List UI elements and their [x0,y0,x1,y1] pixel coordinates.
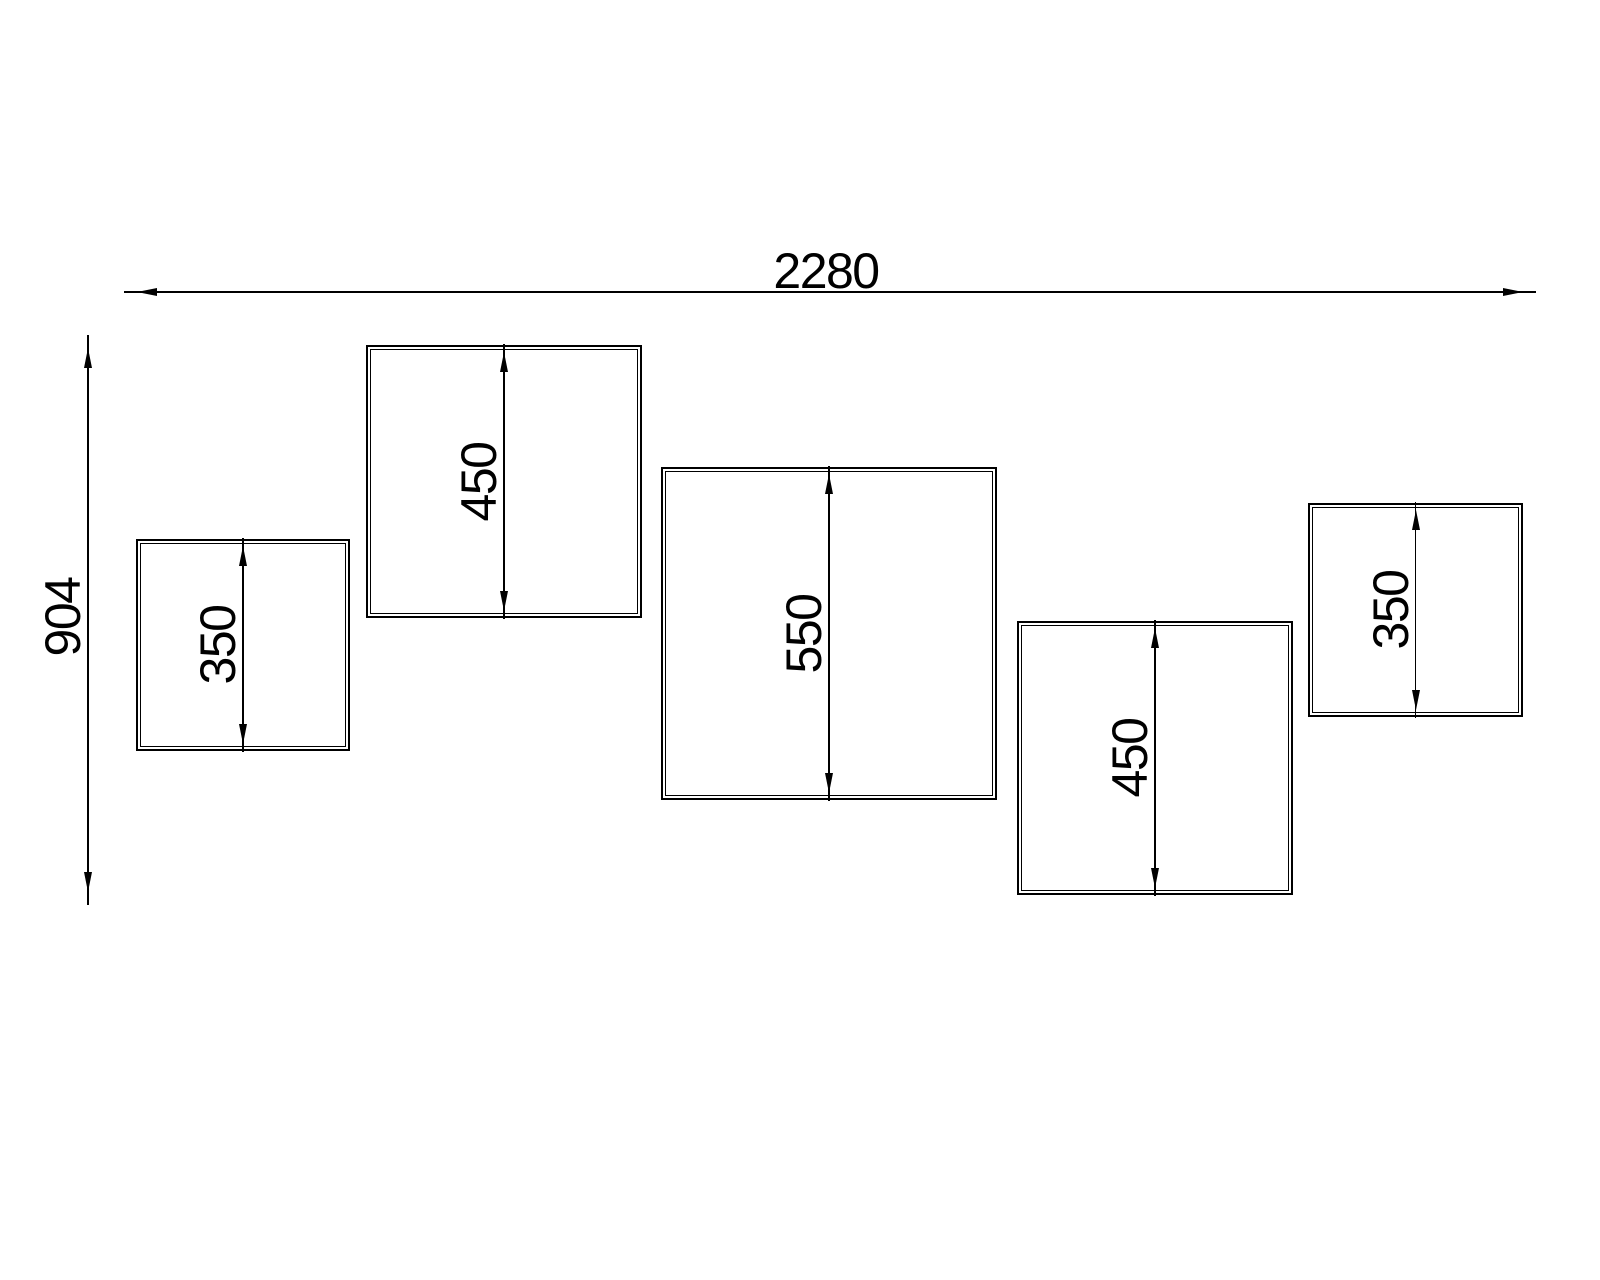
dimension-tail-right [1521,291,1536,293]
panel-height-dimension: 450 [1019,623,1291,893]
overall-width-label: 2280 [773,246,878,296]
arrow-down-icon [500,591,508,611]
panel-height-dimension: 550 [663,469,995,798]
arrow-up-icon [1151,628,1159,648]
dimension-tail-top [87,335,89,350]
panel-height-label: 450 [454,442,504,521]
arrow-down-icon [239,724,247,744]
arrow-up-icon [84,348,92,368]
dimension-tail-left [124,291,139,293]
arrow-up-icon [500,352,508,372]
panel-box-3: 550 [661,467,997,800]
panel-box-5: 350 [1308,503,1523,717]
panel-height-dimension: 450 [368,347,640,616]
arrow-down-icon [84,872,92,892]
panel-height-label: 350 [193,606,243,685]
drawing-canvas: 2280 904 350 450 [0,0,1600,1280]
arrow-up-icon [1412,510,1420,530]
panel-height-dimension: 350 [138,541,348,749]
arrow-down-icon [1151,868,1159,888]
dimension-tail-bottom [87,890,89,905]
panel-box-2: 450 [366,345,642,618]
arrow-up-icon [239,546,247,566]
arrow-down-icon [1412,690,1420,710]
arrow-right-icon [1503,288,1523,296]
arrow-left-icon [137,288,157,296]
panel-box-4: 450 [1017,621,1293,895]
arrow-down-icon [825,773,833,793]
panel-height-dimension: 350 [1310,505,1521,715]
arrow-up-icon [825,474,833,494]
panel-box-1: 350 [136,539,350,751]
panel-height-label: 450 [1105,719,1155,798]
panel-height-label: 550 [779,594,829,673]
panel-height-label: 350 [1366,571,1416,650]
overall-height-label: 904 [38,578,88,657]
